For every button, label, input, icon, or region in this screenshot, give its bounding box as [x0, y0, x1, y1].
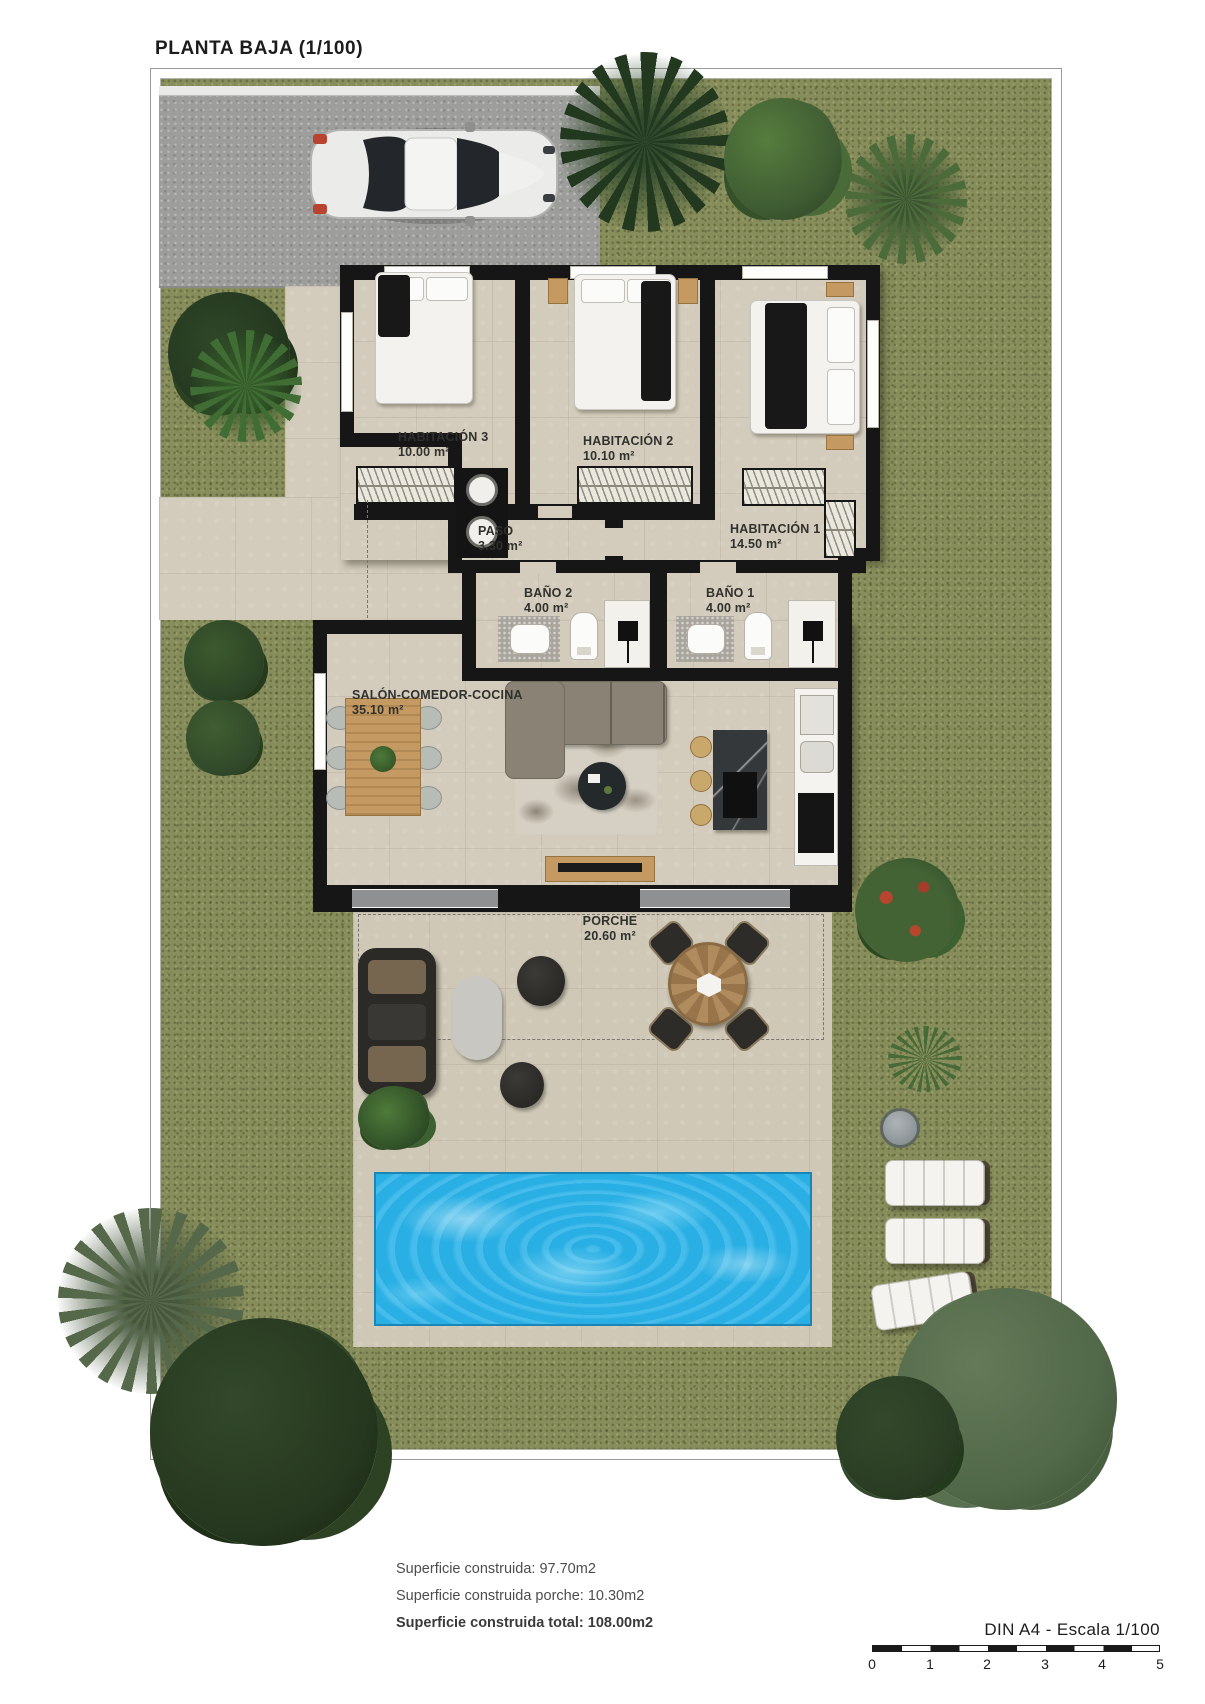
ornamental-grass: [888, 1026, 962, 1092]
window-hab1: [742, 266, 828, 279]
room-label-bano-1: BAÑO 14.00 m²: [706, 586, 754, 616]
bed-hab2: [574, 274, 676, 410]
door-hab2: [538, 506, 572, 518]
porch-area-note: Superficie construida porche: 10.30m2: [396, 1583, 644, 1610]
sink-bano1: [676, 616, 734, 662]
nightstand: [826, 435, 854, 450]
outdoor-sofa: [358, 948, 436, 1096]
shower-bano1: [788, 600, 836, 668]
car-top-view: [305, 118, 563, 230]
wall-right-lower: [838, 561, 852, 885]
scale-tick: 5: [1148, 1656, 1172, 1672]
wall-bath-left: [462, 560, 476, 681]
bed-hab3: [375, 272, 473, 404]
toilet-bano1: [744, 612, 772, 660]
wall-divider-hab3-hab2: [515, 265, 530, 520]
sliding-door-right: [640, 889, 790, 908]
wall-divider-hab2-hab1: [700, 265, 715, 520]
room-label-paso: PASO3.30 m²: [478, 524, 522, 554]
shower-bano2: [604, 600, 650, 668]
driveway-curb: [159, 86, 600, 96]
window-hab1-side: [867, 320, 879, 428]
door-bano1: [700, 562, 736, 573]
bed-hab1: [750, 300, 860, 434]
wall-salon-top-left: [313, 620, 462, 634]
palm-tree: [560, 52, 730, 232]
coffee-table: [578, 762, 626, 810]
wardrobe-hab1-side: [824, 500, 856, 558]
garden-tree: [724, 98, 842, 220]
palm-tree: [190, 330, 302, 442]
nightstand: [548, 278, 568, 304]
toilet-bano2: [570, 612, 598, 660]
room-label-bano-2: BAÑO 24.00 m²: [524, 586, 572, 616]
courtyard-guide-line: [367, 500, 368, 618]
garden-tree: [150, 1318, 378, 1546]
scale-tick: 0: [860, 1656, 884, 1672]
window-hab3-side: [341, 312, 353, 412]
bar-stool: [690, 804, 712, 826]
bar-stool: [690, 770, 712, 792]
sun-lounger: [885, 1160, 985, 1206]
built-area-note: Superficie construida: 97.70m2: [396, 1556, 596, 1583]
scale-tick: 4: [1090, 1656, 1114, 1672]
total-area-note: Superficie construida total: 108.00m2: [396, 1610, 653, 1637]
nightstand: [678, 278, 698, 304]
page-title: PLANTA BAJA (1/100): [155, 38, 363, 60]
scale-tick: 3: [1033, 1656, 1057, 1672]
scale-bar: [872, 1645, 1160, 1652]
wall-bath-bottom: [462, 668, 838, 681]
window-salon-side: [314, 673, 326, 770]
sliding-door-left: [352, 889, 498, 908]
sun-lounger: [885, 1218, 985, 1264]
flowering-bush: [855, 858, 959, 962]
scale-tick: 1: [918, 1656, 942, 1672]
scale-label: DIN A4 - Escala 1/100: [860, 1620, 1160, 1640]
room-label-porche: PORCHE20.60 m²: [540, 914, 680, 944]
room-label-habitacion-3: HABITACIÓN 310.00 m²: [398, 430, 488, 460]
tv-console: [545, 856, 655, 882]
kitchen-counter: [794, 688, 838, 866]
garden-tree: [184, 620, 264, 702]
nightstand: [826, 282, 854, 297]
palm-tree: [845, 134, 967, 264]
bar-stool: [690, 736, 712, 758]
room-label-habitacion-1: HABITACIÓN 114.50 m²: [730, 522, 820, 552]
kitchen-island: [713, 730, 767, 830]
scale-tick: 2: [975, 1656, 999, 1672]
sink-bano2: [498, 616, 560, 662]
door-bano2: [520, 562, 556, 573]
room-label-habitacion-2: HABITACIÓN 210.10 m²: [583, 434, 673, 464]
floor-plan-page: PLANTA BAJA (1/100): [0, 0, 1205, 1704]
pouf: [500, 1062, 544, 1108]
outdoor-round-table: [668, 942, 748, 1026]
table-plant: [370, 746, 396, 772]
wardrobe-hab1: [742, 468, 826, 506]
side-table-oval: [452, 976, 502, 1060]
pouf: [517, 956, 565, 1006]
garden-tree: [836, 1376, 960, 1500]
porch-bush: [358, 1086, 430, 1150]
wardrobe-hab2: [577, 466, 693, 504]
door-hab1: [605, 528, 623, 556]
garden-tree: [186, 700, 260, 776]
swimming-pool: [374, 1172, 812, 1326]
garden-stone: [880, 1108, 920, 1148]
wall-bath-divider: [650, 573, 667, 668]
room-label-salon: SALÓN-COMEDOR-COCINA35.10 m²: [352, 688, 523, 718]
wardrobe-hab3: [356, 466, 456, 504]
